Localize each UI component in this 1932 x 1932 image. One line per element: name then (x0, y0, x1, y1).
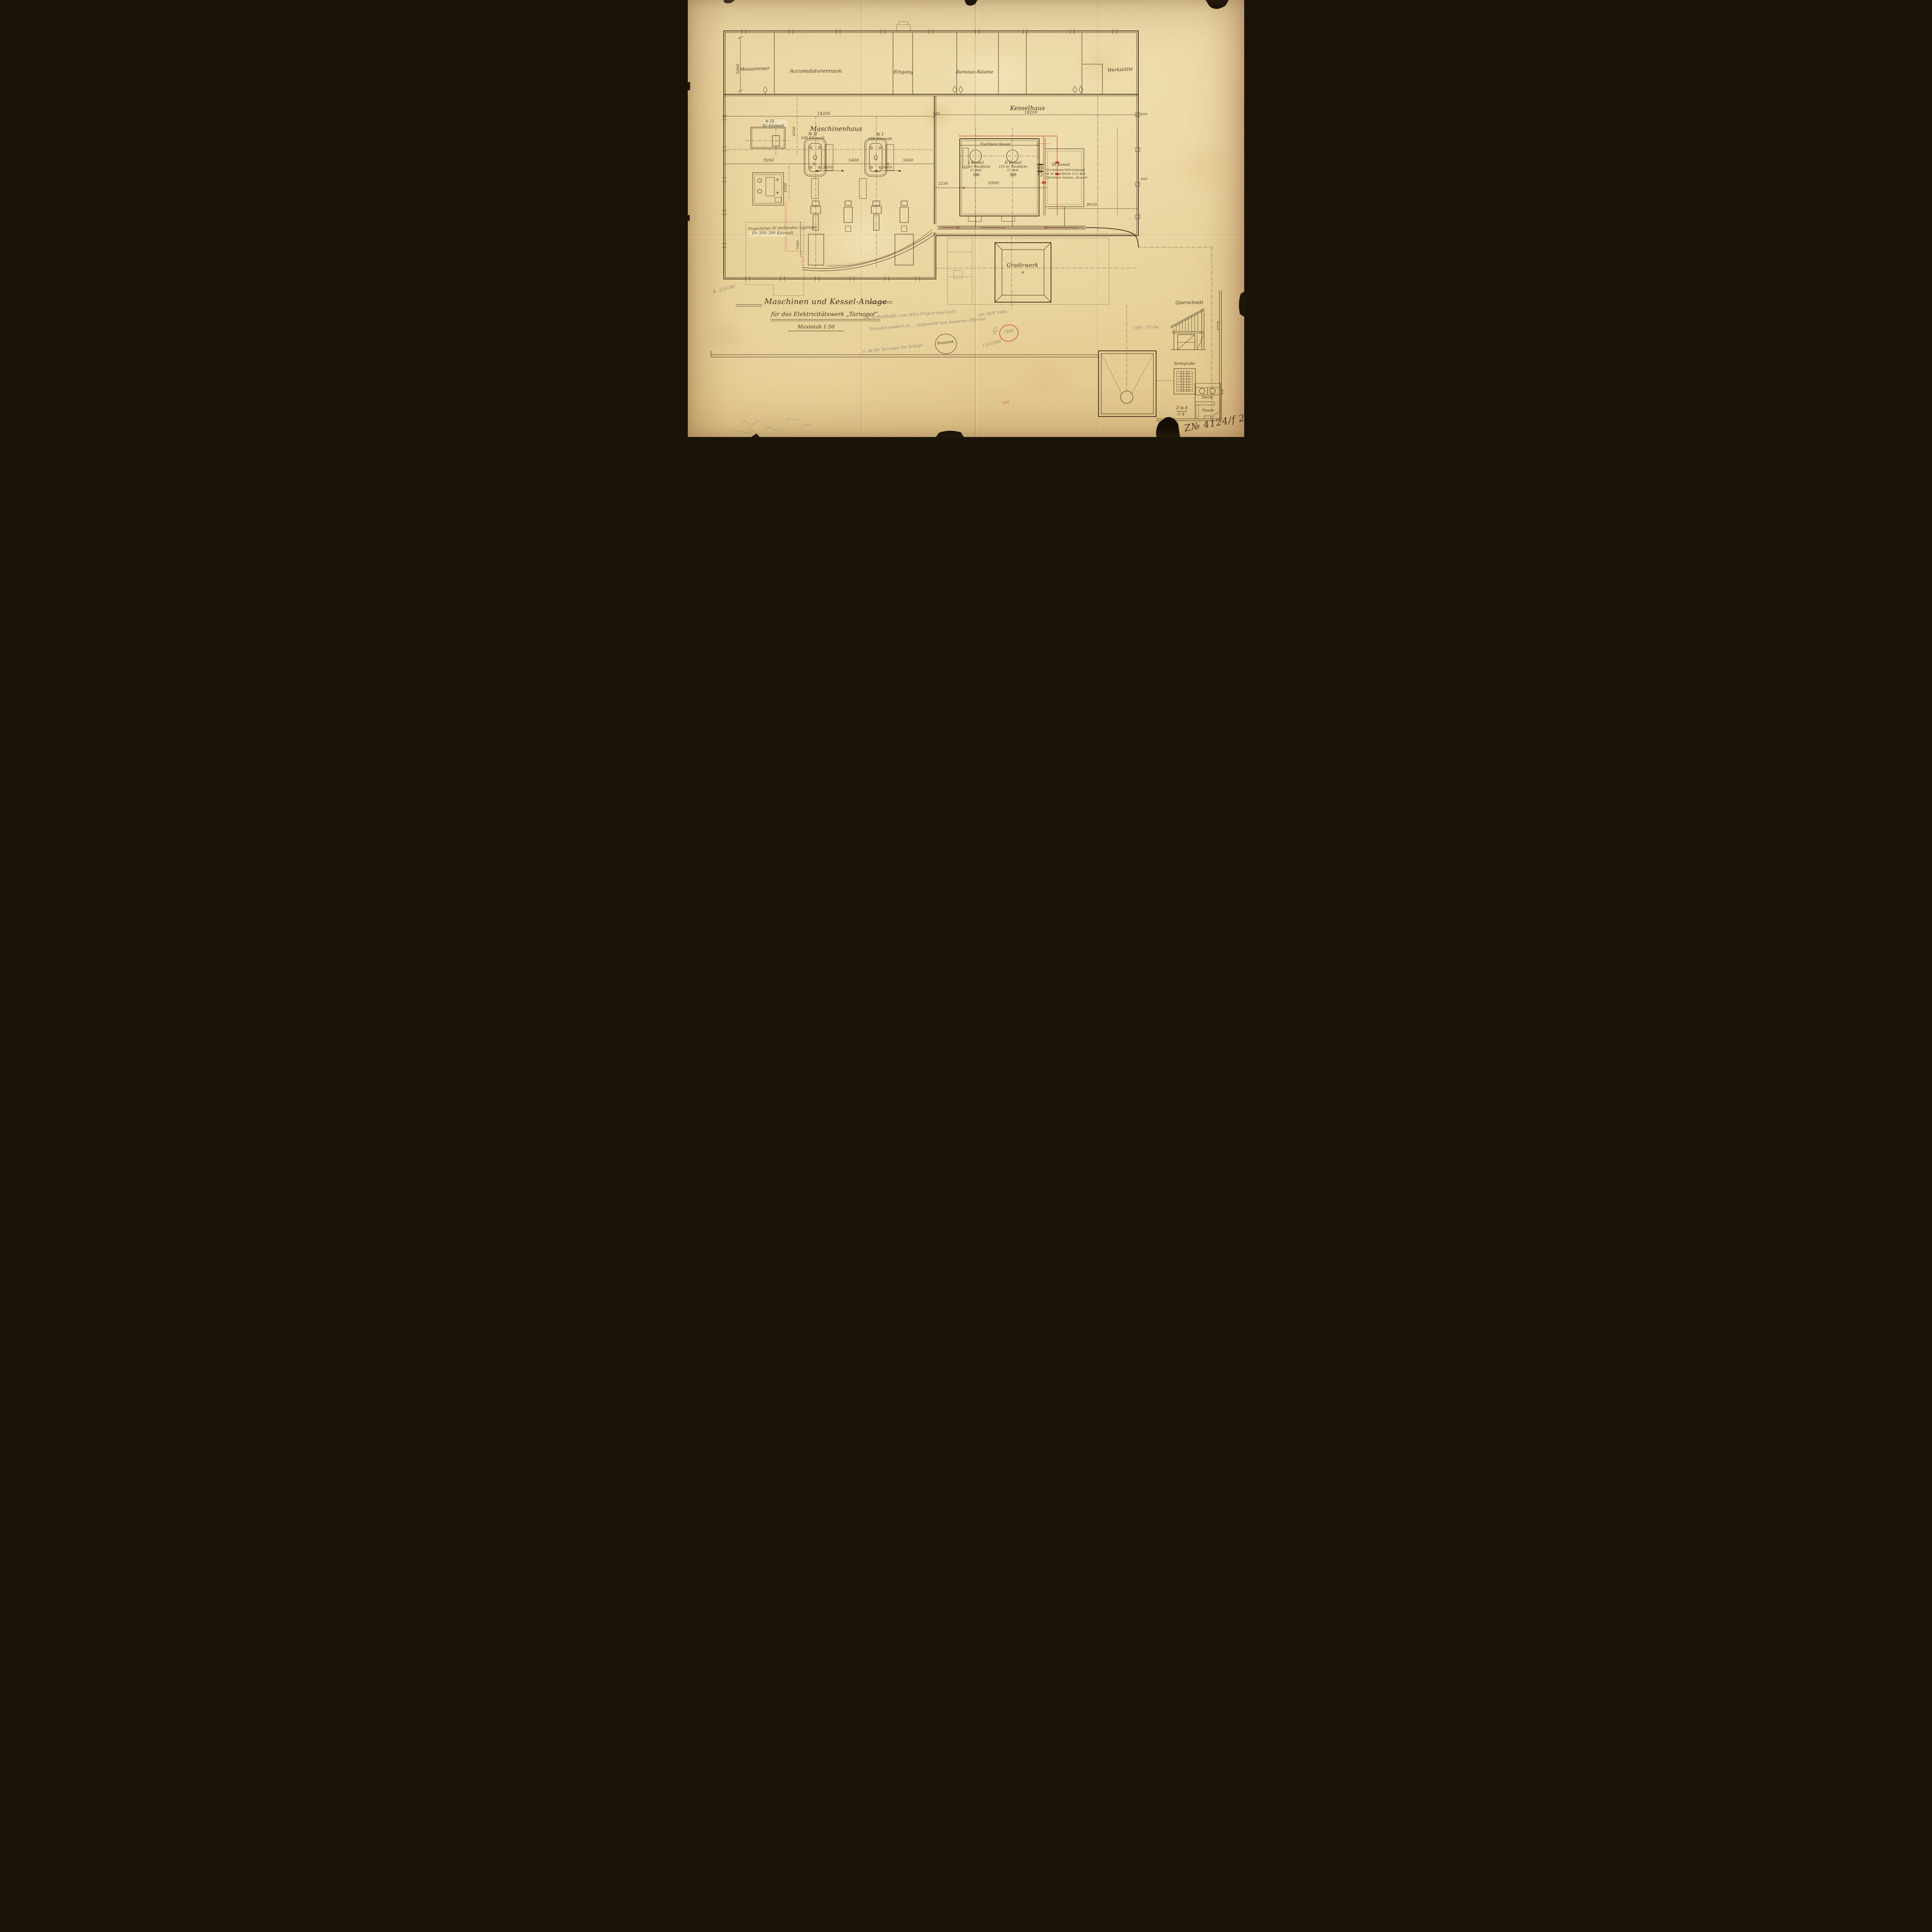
machine-no2-label: № II (802, 132, 823, 136)
boiler2-pressure: 11 Atm. (1001, 169, 1026, 172)
faint-note-2: Tarnopol sondern in … aufgestellt laut ä… (869, 317, 986, 332)
querschnitt-label: Querschnitt (1175, 300, 1203, 305)
dim-9050: 9050 (1087, 203, 1097, 207)
dim-2600-a: 2600 (823, 166, 833, 170)
boiler3-area: 91 m² Heizfläche 12,5 Atm. (1046, 172, 1086, 175)
file-number-note: 13/32906 (982, 339, 1002, 348)
dim-4500-a: 4500 (793, 126, 796, 136)
machine-no3-power: 82 Kilowatt (763, 124, 784, 128)
dim-600-a: 600 (1141, 113, 1148, 116)
dim-5000: 5000 (736, 64, 741, 74)
boiler3-type: Circulations-Röhrenkessel (1046, 168, 1085, 172)
senkgrube-label: Senkgrube (1174, 362, 1195, 366)
boiler3-superheater: Überhitzer System „Kausch“ (1046, 176, 1088, 179)
title-rule-right (869, 301, 893, 303)
red-pencil-note: 600 (1002, 401, 1010, 405)
pissoir-label: Pissoir (1199, 409, 1217, 413)
dim-5400: 5400 (849, 159, 859, 163)
machine-no2-power: 100 Kilowatt (798, 136, 827, 140)
dim-2600-b: 2600 (882, 166, 892, 170)
boiler2-name: II Kessel (1001, 161, 1026, 165)
gradirwerk-label: Gradirwerk (998, 263, 1046, 269)
dim-400: 400 (933, 112, 940, 116)
dim-600-b: 600 (1141, 178, 1148, 181)
machine-no1-label: № I (871, 132, 889, 137)
pencil-measure-note: 109 – 73 Oe (1133, 325, 1159, 330)
projected-aggregate-note-2: für 200–300 Kilowatt (752, 231, 793, 236)
date-fraction-numerator: 11 (992, 327, 998, 331)
title-rule-left (736, 304, 762, 306)
dim-4500-b: 4500 (784, 183, 788, 192)
date-fraction-denominator: V (993, 332, 996, 335)
dim-2250: 2250 (938, 182, 948, 186)
boiler-maker-label: Tischbein Kessel (980, 143, 1011, 146)
boiler3-name: III Kessel (1052, 163, 1070, 167)
machine-no1-power: 100 Kilowatt (866, 137, 895, 141)
dim-9200: 9200 (764, 159, 774, 163)
boiler1-pressure: 11 Atm. (964, 169, 988, 172)
oval-stamp-text: Brusánek (936, 340, 955, 346)
pencil-price-note: K. 220·00 (712, 284, 735, 294)
dim-7000: 7000 (797, 240, 800, 250)
registry-number: Z№ 4124/f 2. (1184, 413, 1244, 434)
sheet-number: Z № 8 (1176, 406, 1187, 412)
dim-6900: 6900 (988, 182, 999, 186)
projected-aggregate-note-1: Projectirtes IV stehendes Aggregat (748, 226, 817, 231)
machine-no3-label: № III (765, 120, 775, 124)
faint-date-note: am 28/V 1904 (978, 310, 1007, 317)
dim-18200-boiler: 18200 (1022, 111, 1040, 115)
room-label-accumulatorenraum: Accumulatorenraum (790, 69, 842, 74)
boiler1-name: I Kessel (964, 161, 988, 165)
room-label-werkstaette: Werkstätte (1107, 66, 1133, 73)
sheet-sub-number: C 4 (1178, 413, 1184, 417)
aborte-label: Aborte (1199, 396, 1216, 400)
title-scale: Massstab 1:50 (788, 325, 844, 331)
faint-note-3: u. ist für Tarnopol die Anlage … (862, 343, 928, 354)
oval-stamp: Brusánek (935, 334, 957, 354)
dim-3600: 3600 (903, 159, 913, 163)
title-line1: Maschinen und Kessel-Anlage (764, 298, 883, 306)
labels: Messzimmer Accumulatorenraum Eingang Bur… (688, 0, 1244, 437)
room-label-bureaux: Bureaux-Räume (953, 70, 996, 75)
room-label-messzimmer: Messzimmer (740, 66, 770, 72)
dim-18200-machine: 18200 (815, 112, 833, 116)
room-label-eingang: Eingang (892, 70, 915, 75)
scanned-blueprint: Messzimmer Accumulatorenraum Eingang Bur… (688, 0, 1244, 437)
